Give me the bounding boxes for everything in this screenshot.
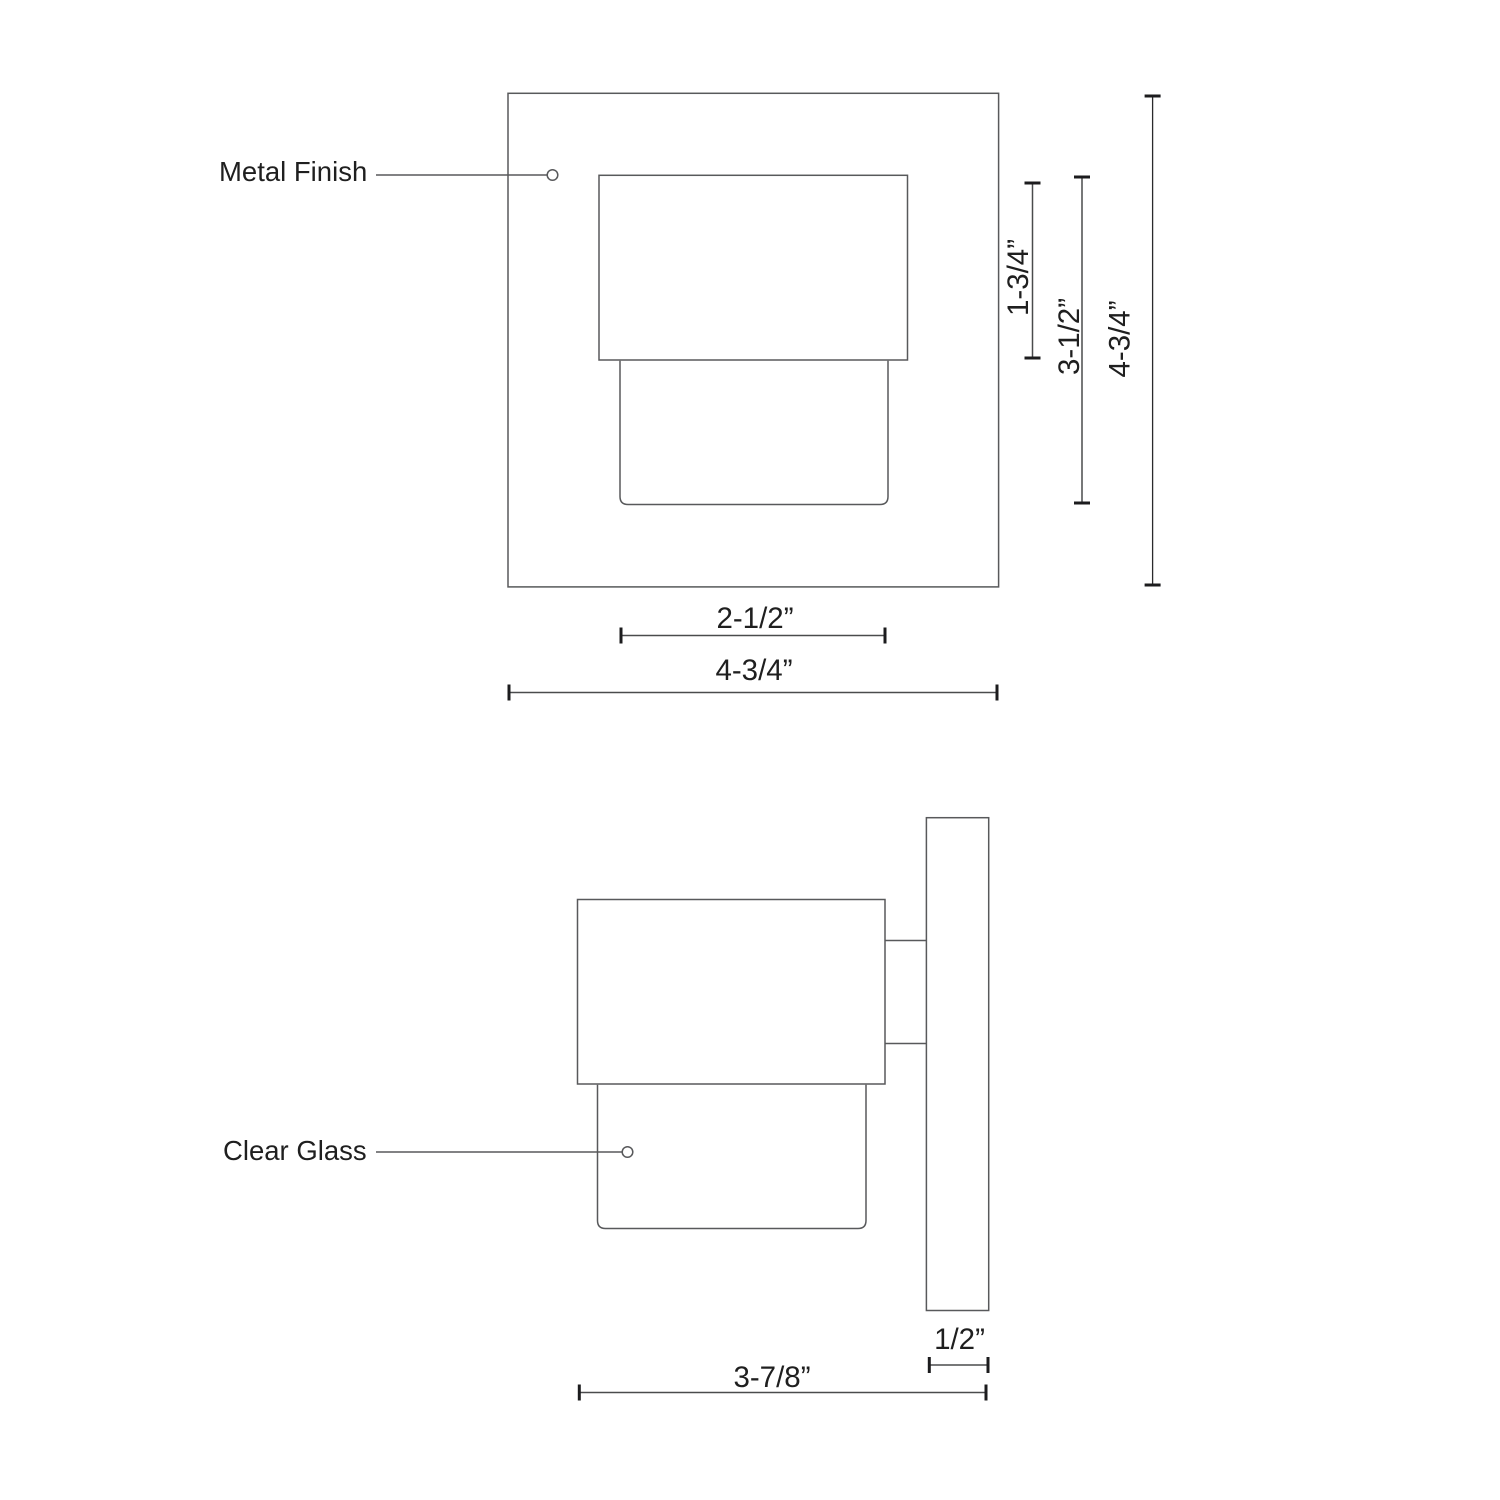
svg-text:3-1/2”: 3-1/2” [1053, 298, 1086, 375]
svg-text:2-1/2”: 2-1/2” [716, 602, 793, 635]
svg-text:Clear Glass: Clear Glass [223, 1135, 367, 1166]
svg-text:3-7/8”: 3-7/8” [733, 1361, 810, 1394]
svg-text:4-3/4”: 4-3/4” [1104, 300, 1137, 377]
svg-text:1/2”: 1/2” [934, 1323, 985, 1356]
svg-text:4-3/4”: 4-3/4” [715, 654, 792, 687]
svg-text:Metal Finish: Metal Finish [219, 156, 367, 187]
svg-text:1-3/4”: 1-3/4” [1002, 239, 1035, 316]
